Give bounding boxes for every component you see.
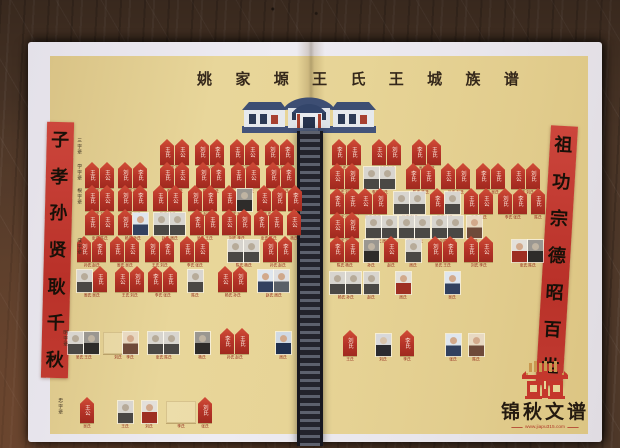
banner-character: 子	[51, 131, 69, 149]
ancestor-tablet: 李氏	[443, 236, 457, 262]
memorial-unit-couple: 王公刘氏王氏 刘氏	[115, 266, 144, 301]
memorial-cells	[366, 212, 397, 239]
tablet-inscription: 王氏	[425, 171, 430, 182]
tablet-inscription: 王氏	[89, 217, 94, 228]
ancestor-name-label: 孙氏 赵氏	[227, 356, 243, 360]
ancestor-tablet: 刘氏	[387, 139, 401, 165]
ancestor-tablet: 王氏	[345, 236, 359, 262]
memorial-cells	[154, 209, 185, 236]
banner-character: 族	[466, 68, 481, 89]
ancestor-tablet: 李氏	[133, 185, 147, 211]
ancestor-tablet: 李氏	[430, 188, 444, 214]
tablet-inscription: 王氏	[535, 196, 540, 207]
memorial-unit-couple: 张氏 陈氏	[512, 236, 543, 271]
tablet-inscription: 王氏	[209, 217, 214, 228]
banner-character: 姚	[197, 68, 212, 89]
tablet-inscription: 王氏	[114, 244, 119, 255]
ancestor-photo	[164, 332, 179, 354]
memorial-cells	[364, 268, 379, 295]
tablet-inscription: 王公	[222, 274, 227, 285]
ancestor-tablet: 王公	[479, 188, 493, 214]
publisher-logo: 锦秋文谱 www.jiapu315.com	[466, 361, 620, 430]
ancestor-photo	[195, 332, 210, 354]
memorial-unit-couple: 杨氏 孙氏	[330, 268, 361, 303]
memorial-cells: 李氏王氏	[330, 236, 359, 263]
banner-character: 贤	[48, 241, 66, 259]
memorial-unit-couple: 刘氏李氏吴氏 王氏	[428, 236, 457, 271]
tablet-inscription: 王氏	[239, 336, 244, 347]
ancestor-photo	[380, 167, 395, 189]
ancestor-photo	[68, 332, 83, 354]
ancestor-photo	[446, 334, 461, 356]
memorial-unit: 刘氏张氏	[198, 397, 212, 432]
tablet-inscription: 刘氏	[267, 244, 272, 255]
ancestor-name-label: 王氏	[346, 358, 353, 362]
tablet-inscription: 刘氏	[192, 193, 197, 204]
ancestor-photo	[244, 240, 259, 262]
memorial-unit: 杨氏	[195, 328, 210, 363]
genealogy-title: 姚家塬王氏王城族谱	[197, 69, 519, 87]
publisher-url-text: www.jiapu315.com	[525, 424, 565, 429]
memorial-cells	[276, 328, 291, 355]
tablet-inscription: 李氏	[96, 244, 101, 255]
tablet-inscription: 王公	[249, 147, 254, 158]
jinqiu-emblem-icon	[521, 361, 569, 403]
tablet-inscription: 刘氏	[270, 170, 275, 181]
memorial-unit-couple: 王氏周氏 吴氏	[77, 266, 107, 301]
tablet-inscription: 王氏	[157, 193, 162, 204]
ancestor-photo	[364, 272, 379, 294]
ancestor-photo	[432, 216, 447, 238]
ancestor-tablet: 王氏	[421, 163, 435, 189]
memorial-cells	[228, 236, 259, 263]
ancestor-tablet: 刘氏	[198, 397, 212, 423]
memorial-cells: 李氏王氏	[412, 139, 441, 166]
ancestor-tablet: 李氏	[288, 185, 302, 211]
ancestor-tablet: 刘氏	[237, 209, 251, 235]
banner-character: 王	[389, 68, 404, 89]
banner-character: 昭	[545, 283, 564, 302]
tablet-inscription: 王氏	[164, 170, 169, 181]
tablet-inscription: 王公	[199, 244, 204, 255]
tablet-inscription: 王氏	[234, 147, 239, 158]
publisher-url: www.jiapu315.com	[511, 424, 578, 429]
memorial-cells: 王氏	[222, 185, 252, 212]
ancestor-tablet: 李氏	[412, 139, 426, 165]
ancestor-tablet: 王公	[218, 266, 232, 292]
ancestor-name-label: 赵氏 周氏	[266, 294, 282, 298]
ancestor-name-label: 刘氏 李氏	[471, 264, 487, 268]
memorial-cells: 李氏王氏	[332, 139, 361, 166]
tablet-inscription: 李氏	[137, 170, 142, 181]
ancestor-photo	[364, 240, 379, 262]
ancestor-photo	[123, 332, 138, 354]
tablet-inscription: 王氏	[226, 193, 231, 204]
memorial-cells: 李氏王氏	[190, 209, 219, 236]
memorial-cells: 王公刘氏	[257, 185, 286, 212]
ancestor-tablet: 刘氏	[343, 330, 357, 356]
tablet-inscription: 王氏	[89, 193, 94, 204]
tablet-inscription: 李氏	[258, 217, 263, 228]
ancestor-photo	[410, 192, 425, 214]
memorial-cells	[469, 330, 484, 357]
ancestor-tablet: 王氏	[345, 188, 359, 214]
tablet-inscription: 李氏	[152, 274, 157, 285]
ancestor-photo	[170, 213, 185, 235]
tablet-inscription: 李氏	[334, 196, 339, 207]
memorial-cells	[364, 163, 395, 190]
tablet-inscription: 刘氏	[81, 244, 86, 255]
ancestor-tablet: 李氏	[254, 209, 268, 235]
memorial-unit: 刘氏王氏	[343, 330, 357, 365]
tablet-inscription: 刘氏	[202, 405, 207, 416]
ancestor-tablet: 刘氏	[526, 163, 540, 189]
tablet-inscription: 王氏	[235, 170, 240, 181]
memorial-cells: 刘氏	[343, 330, 357, 357]
ancestor-tablet: 王公	[115, 266, 129, 292]
ancestor-tablet: 王氏	[347, 139, 361, 165]
tablet-inscription: 李氏	[480, 171, 485, 182]
ancestor-tablet: 王氏	[205, 209, 219, 235]
ancestor-photo	[448, 216, 463, 238]
tablet-inscription: 刘氏	[391, 147, 396, 158]
tablet-inscription: 刘氏	[460, 171, 465, 182]
ancestor-tablet: 王氏	[85, 209, 99, 235]
ancestor-photo	[148, 332, 163, 354]
ancestor-tablet: 王公	[287, 209, 301, 235]
memorial-cells: 刘氏李氏	[77, 236, 106, 263]
tablet-inscription: 刘氏	[530, 171, 535, 182]
ancestor-tablet: 王氏	[269, 209, 283, 235]
tablet-inscription: 王公	[172, 193, 177, 204]
ancestor-tablet: 李氏	[476, 163, 490, 189]
generation-label: 成字辈	[76, 238, 81, 255]
ancestor-photo	[84, 332, 99, 354]
ancestral-hall-icon	[242, 86, 376, 134]
memorial-cells: 李氏王氏	[254, 209, 283, 236]
memorial-cells	[118, 397, 133, 424]
ancestor-tablet: 王公	[195, 236, 209, 262]
ancestor-name-label: 刘氏	[380, 358, 387, 362]
tablet-inscription: 李氏	[404, 338, 409, 349]
memorial-cells	[188, 266, 203, 293]
ancestor-tablet: 王公	[384, 236, 398, 262]
memorial-cells: 刘氏李氏	[145, 236, 174, 263]
ancestor-name-label: 吴氏	[449, 296, 456, 300]
ancestor-photo	[133, 213, 148, 235]
generation-label: 学字辈	[76, 164, 81, 181]
ancestor-tablet: 王公	[479, 236, 493, 262]
tablet-inscription: 王公	[119, 274, 124, 285]
generation-label: 忠字辈	[57, 398, 62, 415]
memorial-cells	[123, 328, 138, 355]
tablet-inscription: 刘氏	[276, 193, 281, 204]
tablet-inscription: 王氏	[351, 147, 356, 158]
ancestor-tablet: 王公	[168, 185, 182, 211]
memorial-cells: 王氏	[531, 188, 545, 215]
memorial-cells: 王公刘氏	[358, 188, 387, 215]
ancestor-photo	[376, 334, 391, 356]
spirit-ladder-illustration	[297, 131, 323, 446]
tablet-inscription: 王公	[483, 244, 488, 255]
memorial-cells	[142, 397, 157, 424]
memorial-cells	[330, 268, 361, 295]
ancestor-tablet: 王氏	[464, 236, 478, 262]
ancestor-photo	[77, 270, 92, 292]
ancestor-tablet: 李氏	[400, 330, 414, 356]
tablet-inscription: 李氏	[292, 193, 297, 204]
tablet-inscription: 王氏	[97, 274, 102, 285]
ancestor-tablet: 李氏	[278, 236, 292, 262]
memorial-cells: 王公刘氏	[330, 163, 359, 190]
tablet-inscription: 李氏	[224, 336, 229, 347]
tablet-inscription: 刘氏	[134, 274, 139, 285]
ancestor-tablet: 李氏	[148, 266, 162, 292]
ancestor-name-label: 赵氏	[387, 264, 394, 268]
memorial-cells: 王氏王公	[464, 236, 493, 263]
memorial-cells: 王公刘氏	[330, 212, 359, 239]
tablet-inscription: 李氏	[137, 193, 142, 204]
ancestor-name-label: 周氏 吴氏	[84, 294, 100, 298]
ancestor-photo	[445, 192, 460, 214]
memorial-unit: 李氏	[123, 328, 138, 363]
memorial-cells: 王公刘氏	[115, 266, 144, 293]
memorial-unit: 陈氏	[188, 266, 203, 301]
memorial-cells: 王氏王公	[153, 185, 182, 212]
banner-character: 孙	[49, 204, 67, 222]
memorial-cells: 李氏王氏	[330, 188, 359, 215]
ancestor-tablet: 刘氏	[428, 236, 442, 262]
memorial-cells	[512, 236, 543, 263]
memorial-cells: 刘氏李氏	[428, 236, 457, 263]
ancestor-tablet: 李氏	[330, 188, 344, 214]
tablet-inscription: 李氏	[285, 170, 290, 181]
ancestor-name-label: 刘氏	[146, 425, 153, 429]
memorial-cells: 李氏王氏	[148, 266, 177, 293]
memorial-cells	[396, 268, 411, 295]
ancestor-photo	[364, 167, 379, 189]
tablet-inscription: 李氏	[194, 217, 199, 228]
memorial-cells	[166, 397, 196, 424]
tablet-inscription: 王氏	[89, 170, 94, 181]
ancestor-photo	[258, 270, 273, 292]
ancestor-tablet: 李氏	[330, 236, 344, 262]
ancestor-name-label: 吴氏 王氏	[76, 356, 92, 360]
tablet-inscription: 王公	[179, 147, 184, 158]
memorial-unit-couple: 王氏王公刘氏 李氏	[464, 236, 493, 271]
ancestor-tablet: 王公	[100, 209, 114, 235]
ancestor-tablet: 王公	[125, 236, 139, 262]
ancestor-tablet: 王公	[80, 397, 94, 423]
ancestor-name-label: 张氏	[450, 358, 457, 362]
ancestor-name-label: 王氏	[122, 425, 129, 429]
memorial-unit-couple: 赵氏 周氏	[258, 266, 289, 301]
memorial-cells: 李氏王氏	[406, 163, 435, 190]
tablet-inscription: 李氏	[214, 147, 219, 158]
tablet-inscription: 李氏	[284, 147, 289, 158]
tablet-inscription: 王公	[483, 196, 488, 207]
memorial-cells: 刘氏	[118, 209, 148, 236]
banner-character: 功	[552, 172, 571, 191]
ancestor-photo	[512, 240, 527, 262]
banner-character: 百	[543, 320, 562, 339]
tablet-inscription: 李氏	[410, 171, 415, 182]
tablet-inscription: 王公	[104, 217, 109, 228]
memorial-cells: 王氏王公	[180, 236, 209, 263]
tablet-inscription: 刘氏	[122, 217, 127, 228]
ancestor-photo	[188, 270, 203, 292]
tablet-inscription: 王公	[104, 193, 109, 204]
ancestor-tablet: 李氏	[220, 328, 234, 354]
tablet-inscription: 王公	[388, 244, 393, 255]
memorial-cells	[258, 266, 289, 293]
tablet-inscription: 王氏	[167, 274, 172, 285]
tablet-inscription: 王公	[515, 171, 520, 182]
memorial-cells	[195, 328, 210, 355]
ancestor-tablet: 李氏	[160, 236, 174, 262]
memorial-cells: 王公刘氏	[218, 266, 247, 293]
ancestor-name-label: 刘氏	[114, 356, 121, 360]
ancestor-tablet: 王氏	[222, 185, 236, 211]
memorial-unit: 刘氏	[142, 397, 157, 432]
tablet-inscription: 王公	[250, 170, 255, 181]
tablet-inscription: 王氏	[184, 244, 189, 255]
ancestor-tablet: 王公	[330, 163, 344, 189]
memorial-cells	[394, 188, 425, 215]
memorial-cells: 刘氏李氏	[263, 236, 292, 263]
ancestor-name-label: 张氏 陈氏	[156, 356, 172, 360]
banner-character: 耿	[47, 277, 65, 295]
ancestor-tablet: 王氏	[85, 185, 99, 211]
tablet-inscription: 刘氏	[149, 244, 154, 255]
tablet-inscription: 刘氏	[200, 170, 205, 181]
tablet-inscription: 王公	[291, 217, 296, 228]
ancestor-tablet: 李氏	[406, 163, 420, 189]
ancestor-tablet: 王氏	[163, 266, 177, 292]
memorial-unit: 周氏	[276, 328, 291, 363]
ancestor-photo	[142, 401, 157, 423]
ancestor-tablet: 王公	[330, 212, 344, 238]
memorial-cells	[445, 268, 460, 295]
memorial-cells: 王公刘氏	[441, 163, 470, 190]
memorial-unit: 王公赵氏	[384, 236, 398, 271]
tablet-inscription: 王公	[129, 244, 134, 255]
tablet-inscription: 王公	[84, 405, 89, 416]
memorial-cells: 刘氏	[198, 397, 212, 424]
memorial-cells	[148, 328, 179, 355]
memorial-cells: 李氏王氏	[476, 163, 505, 190]
ancestor-name-label: 李氏 张氏	[505, 216, 521, 220]
tablet-inscription: 王公	[261, 193, 266, 204]
ancestor-tablet: 刘氏	[118, 209, 132, 235]
memorial-cells: 王氏王公	[464, 188, 493, 215]
memorial-cells: 李氏	[400, 330, 414, 357]
ancestor-photo	[330, 272, 345, 294]
ancestor-tablet: 王公	[100, 185, 114, 211]
ancestor-tablet: 刘氏	[345, 212, 359, 238]
ancestor-photo	[415, 216, 430, 238]
url-dash-right	[567, 426, 578, 427]
ancestor-photo	[237, 189, 252, 211]
memorial-cells: 王公刘氏	[511, 163, 540, 190]
tablet-inscription: 李氏	[334, 244, 339, 255]
ancestor-name-label: 杨氏 孙氏	[225, 294, 241, 298]
memorial-cells: 王公	[80, 397, 94, 424]
memorial-unit: 周氏	[406, 236, 421, 271]
tablet-inscription: 刘氏	[237, 274, 242, 285]
ancestor-tablet: 刘氏	[263, 236, 277, 262]
banner-character: 宗	[549, 209, 568, 228]
tablet-inscription: 王氏	[468, 244, 473, 255]
ancestor-photo	[346, 272, 361, 294]
tablet-inscription: 刘氏	[241, 217, 246, 228]
memorial-unit: 吴氏	[445, 268, 460, 303]
tablet-inscription: 王公	[104, 170, 109, 181]
ancestor-tablet: 王氏	[464, 188, 478, 214]
ancestor-tablet: 刘氏	[130, 266, 144, 292]
ancestor-tablet: 王氏	[491, 163, 505, 189]
ancestor-name-label: 张氏	[201, 425, 208, 429]
ancestor-name-label: 王氏 刘氏	[122, 294, 138, 298]
banner-character: 孝	[50, 168, 68, 186]
ancestor-tablet: 王公	[257, 185, 271, 211]
ancestor-tablet: 刘氏	[272, 185, 286, 211]
memorial-cells: 李氏王氏	[220, 328, 249, 355]
memorial-cells: 王氏王公	[85, 185, 114, 212]
memorial-cells: 王公刘氏	[222, 209, 251, 236]
ancestor-tablet: 王氏	[235, 328, 249, 354]
ancestor-photo	[394, 192, 409, 214]
banner-character: 城	[427, 68, 442, 89]
ancestor-tablet: 刘氏	[498, 188, 512, 214]
memorial-cells: 王氏王公	[110, 236, 139, 263]
memorial-cells: 李氏	[288, 185, 302, 212]
tablet-inscription: 刘氏	[199, 147, 204, 158]
memorial-unit: 周氏	[396, 268, 411, 303]
ancestor-name-label: 李氏	[177, 425, 184, 429]
memorial-unit: 李氏	[166, 397, 196, 432]
tablet-inscription: 王氏	[468, 196, 473, 207]
tablet-inscription: 刘氏	[377, 196, 382, 207]
ancestor-tablet: 王公	[372, 139, 386, 165]
ancestor-photo	[154, 213, 169, 235]
tablet-inscription: 王公	[179, 170, 184, 181]
ancestor-tablet: 刘氏	[345, 163, 359, 189]
tablet-inscription: 刘氏	[432, 244, 437, 255]
ancestor-tablet: 刘氏	[456, 163, 470, 189]
memorial-cells	[68, 328, 99, 355]
tablet-inscription: 李氏	[517, 196, 522, 207]
tablet-inscription: 王氏	[349, 196, 354, 207]
ancestor-name-label: 张氏 陈氏	[520, 264, 536, 268]
ancestor-tablet: 李氏	[190, 209, 204, 235]
tablet-inscription: 刘氏	[269, 147, 274, 158]
tablet-inscription: 刘氏	[349, 171, 354, 182]
tablet-inscription: 刘氏	[122, 170, 127, 181]
ancestor-tablet: 王氏	[153, 185, 167, 211]
photo-of-genealogy-poster: 姚家塬王氏王城族谱 子孝孙贤耿千秋 祖功宗德昭百世	[0, 0, 620, 448]
ancestor-photo	[228, 240, 243, 262]
ancestor-tablet: 王公	[511, 163, 525, 189]
memorial-unit-couple: 张氏 陈氏	[148, 328, 179, 363]
memorial-unit: 赵氏	[364, 268, 379, 303]
tablet-inscription: 王公	[445, 171, 450, 182]
memorial-cells	[432, 212, 463, 239]
tablet-inscription: 王氏	[164, 147, 169, 158]
ancestor-tablet: 王公	[358, 188, 372, 214]
ancestor-tablet: 王氏	[531, 188, 545, 214]
ancestor-photo	[528, 240, 543, 262]
